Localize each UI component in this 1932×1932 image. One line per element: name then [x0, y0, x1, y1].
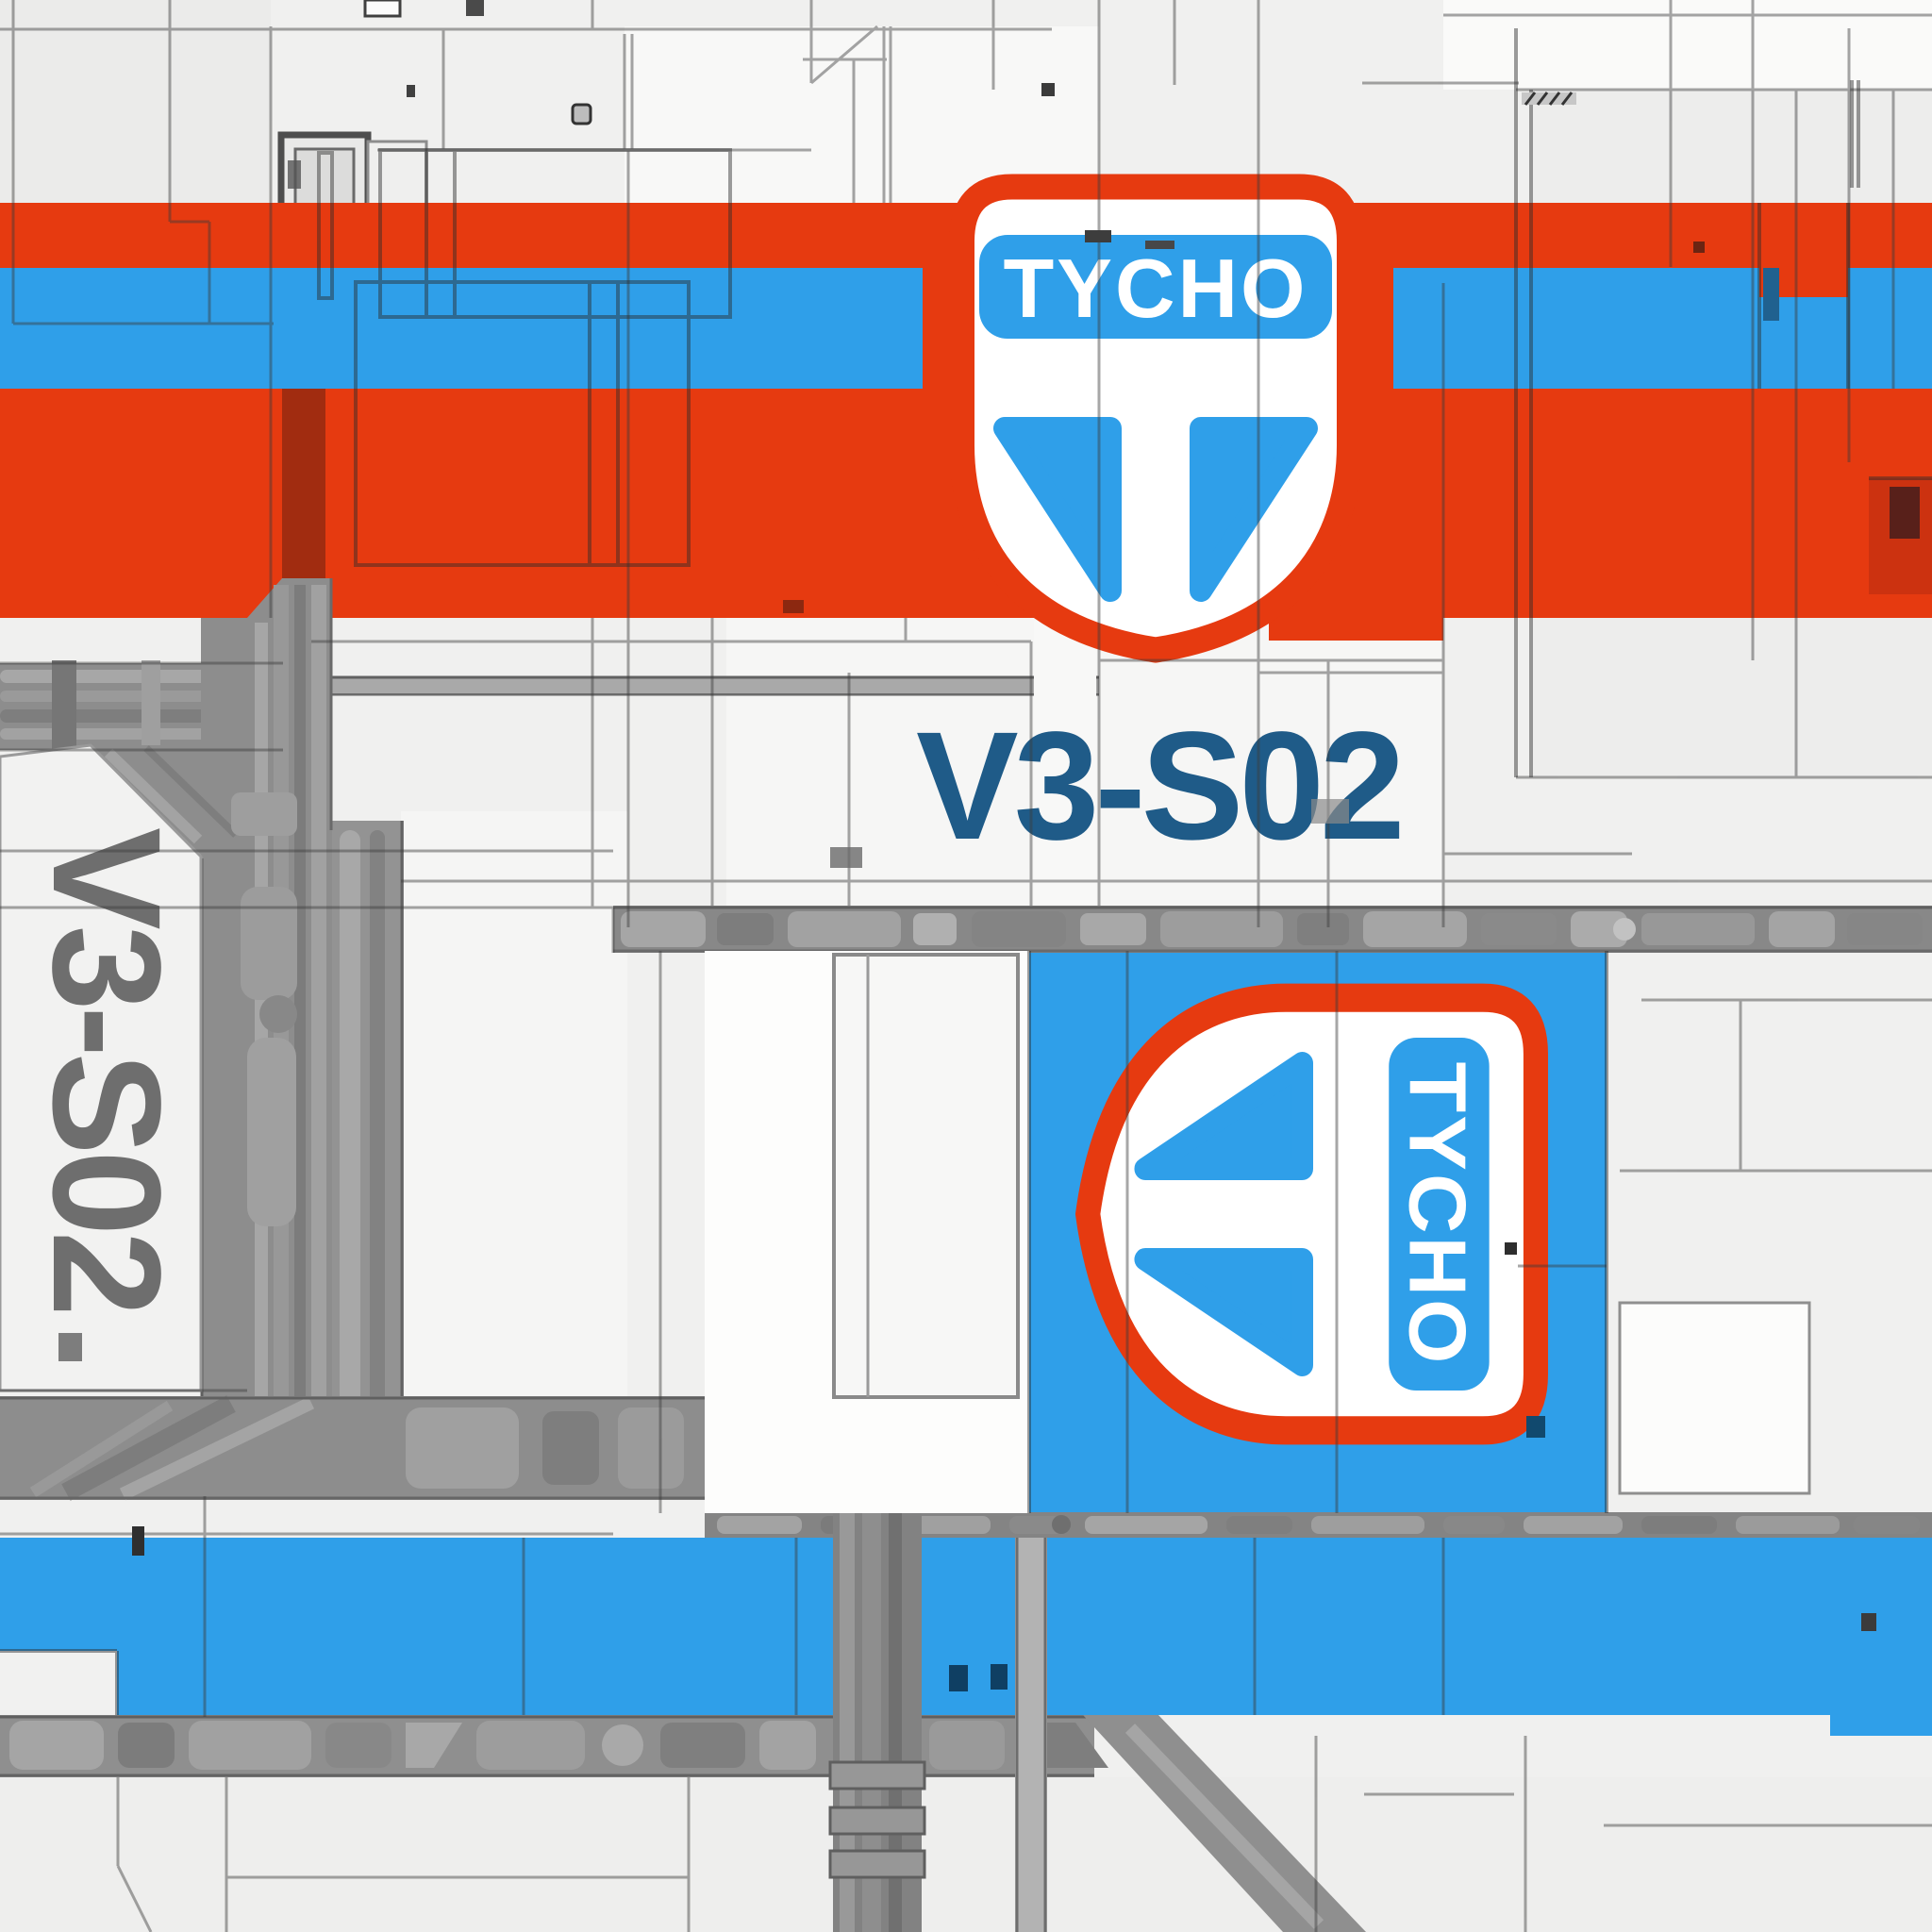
svg-text:V3-S02: V3-S02	[21, 827, 193, 1312]
